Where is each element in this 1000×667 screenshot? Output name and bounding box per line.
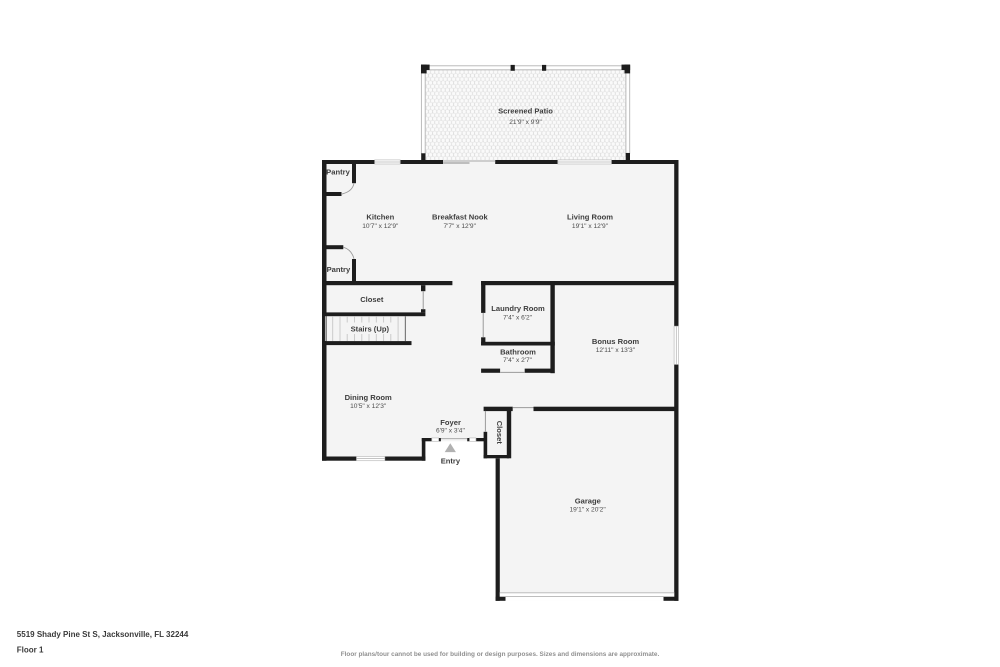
svg-text:Laundry Room: Laundry Room [491,304,545,313]
svg-text:Dining Room: Dining Room [345,393,392,402]
svg-text:5519 Shady Pine St S, Jacksonv: 5519 Shady Pine St S, Jacksonville, FL 3… [17,630,189,639]
svg-text:Kitchen: Kitchen [366,213,394,222]
svg-text:10'5" x 12'3": 10'5" x 12'3" [350,403,387,410]
svg-text:Breakfast Nook: Breakfast Nook [432,213,488,222]
svg-text:Closet: Closet [360,295,384,304]
svg-text:Entry: Entry [441,456,461,465]
svg-text:Floor 1: Floor 1 [17,645,44,654]
svg-text:12'11" x 13'3": 12'11" x 13'3" [596,347,636,354]
svg-text:7'4" x 6'2": 7'4" x 6'2" [503,315,532,322]
svg-text:10'7" x 12'9": 10'7" x 12'9" [362,223,399,230]
svg-text:19'1" x 12'9": 19'1" x 12'9" [572,223,609,230]
svg-text:19'1" x 20'2": 19'1" x 20'2" [570,506,607,513]
svg-text:Pantry: Pantry [326,168,350,177]
svg-text:Living Room: Living Room [567,213,613,222]
svg-text:21'9" x 9'9": 21'9" x 9'9" [509,119,542,126]
svg-text:7'7" x 12'9": 7'7" x 12'9" [443,223,476,230]
svg-text:Stairs (Up): Stairs (Up) [351,324,390,333]
svg-text:Closet: Closet [495,421,504,445]
svg-text:7'4" x 2'7": 7'4" x 2'7" [503,357,532,364]
svg-text:Floor plans/tour cannot be use: Floor plans/tour cannot be used for buil… [341,651,660,658]
svg-text:Screened Patio: Screened Patio [498,107,553,116]
svg-text:Bathroom: Bathroom [500,348,536,357]
svg-text:6'9" x 3'4": 6'9" x 3'4" [436,427,465,434]
svg-text:Pantry: Pantry [327,265,351,274]
svg-text:Foyer: Foyer [440,418,461,427]
svg-text:Bonus Room: Bonus Room [592,337,639,346]
svg-text:Garage: Garage [575,496,601,505]
